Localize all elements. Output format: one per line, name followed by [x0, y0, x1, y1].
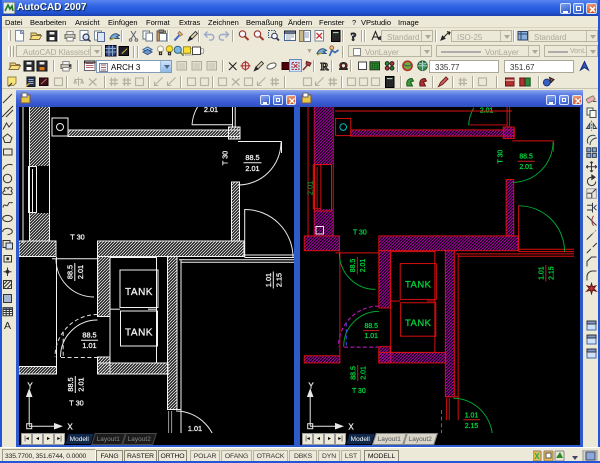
svg-text:88.5: 88.5 [66, 377, 75, 391]
svg-text:T 30: T 30 [352, 388, 366, 395]
svg-text:1.01: 1.01 [364, 333, 378, 340]
svg-text:T 30: T 30 [69, 399, 83, 408]
svg-text:88.5: 88.5 [66, 265, 75, 279]
svg-text:1.01: 1.01 [539, 266, 546, 280]
svg-text:2.01: 2.01 [360, 259, 367, 273]
svg-text:R: R [321, 61, 330, 72]
svg-text:T 30: T 30 [221, 151, 230, 165]
svg-text:T 30: T 30 [353, 229, 367, 236]
svg-text:88.5: 88.5 [364, 323, 378, 330]
svg-text:TANK: TANK [405, 279, 432, 290]
svg-text:88.5: 88.5 [245, 153, 259, 162]
svg-text:?: ? [351, 30, 357, 43]
svg-text:TANK: TANK [405, 318, 432, 329]
svg-text:T 30: T 30 [497, 150, 504, 164]
svg-text:2.01: 2.01 [519, 164, 533, 171]
svg-text:2.15: 2.15 [465, 423, 479, 430]
svg-text:Ω: Ω [339, 61, 347, 73]
svg-text:2.01: 2.01 [77, 377, 86, 391]
svg-text:TANK: TANK [125, 328, 153, 339]
svg-text:X: X [348, 423, 354, 432]
svg-text:88.5: 88.5 [351, 366, 358, 380]
svg-text:1.01: 1.01 [465, 412, 479, 419]
svg-text:TANK: TANK [125, 287, 153, 298]
svg-text:88.5: 88.5 [82, 331, 96, 340]
svg-text:1.01: 1.01 [264, 273, 273, 287]
svg-text:X: X [67, 423, 73, 432]
svg-text:1.01: 1.01 [82, 341, 96, 350]
svg-text:Y: Y [308, 382, 314, 391]
svg-text:88.5: 88.5 [519, 154, 533, 161]
svg-text:2.15: 2.15 [275, 273, 284, 287]
svg-text:Y: Y [27, 382, 33, 391]
svg-text:1.01: 1.01 [188, 424, 202, 433]
svg-text:T 30: T 30 [70, 233, 84, 242]
svg-text:2.15: 2.15 [549, 266, 556, 280]
svg-text:A: A [4, 320, 11, 331]
svg-text:88.5: 88.5 [350, 259, 357, 273]
svg-text:2.01: 2.01 [306, 181, 315, 195]
svg-text:2.01: 2.01 [204, 107, 218, 114]
svg-text:2.01: 2.01 [76, 265, 85, 279]
svg-text:2.01: 2.01 [361, 366, 368, 380]
svg-text:2.01: 2.01 [245, 164, 259, 173]
